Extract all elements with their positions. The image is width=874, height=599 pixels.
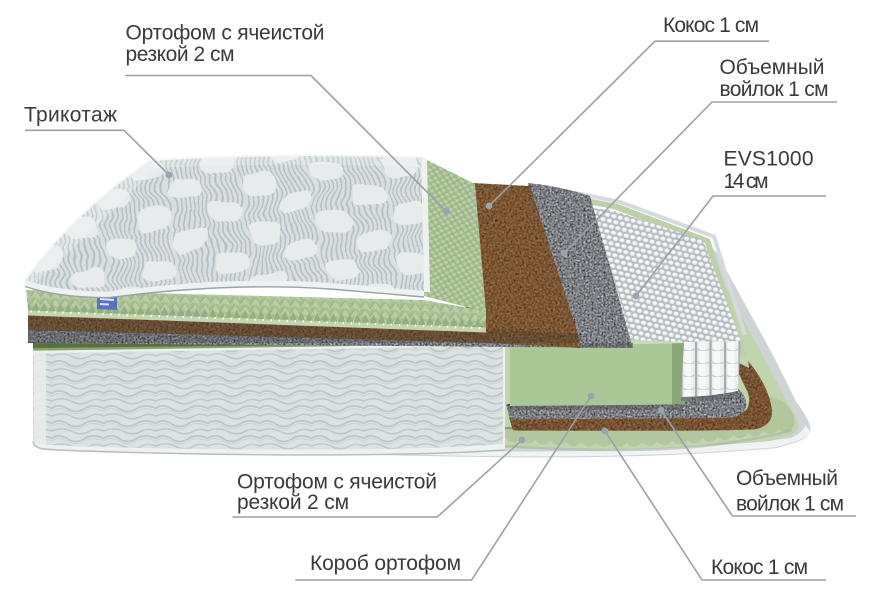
svg-text:Объемный: Объемный [736,467,838,490]
svg-text:резкой 2 см: резкой 2 см [126,43,235,66]
svg-text:Короб ортофом: Короб ортофом [310,552,461,575]
svg-text:14 см: 14 см [724,170,769,193]
svg-text:Трикотаж: Трикотаж [24,104,117,127]
svg-text:Объемный: Объемный [720,56,825,79]
svg-text:Ортофом с ячеистой: Ортофом с ячеистой [126,22,325,45]
svg-text:войлок 1 см: войлок 1 см [720,78,829,101]
svg-text:Ортофом с ячеистой: Ортофом с ячеистой [237,470,437,493]
svg-text:Кокос 1 см: Кокос 1 см [663,14,759,37]
svg-text:войлок 1 см: войлок 1 см [736,492,844,515]
svg-text:резкой 2 см: резкой 2 см [237,491,349,514]
svg-text:Кокос 1 см: Кокос 1 см [711,556,808,579]
svg-text:EVS1000: EVS1000 [724,148,814,171]
